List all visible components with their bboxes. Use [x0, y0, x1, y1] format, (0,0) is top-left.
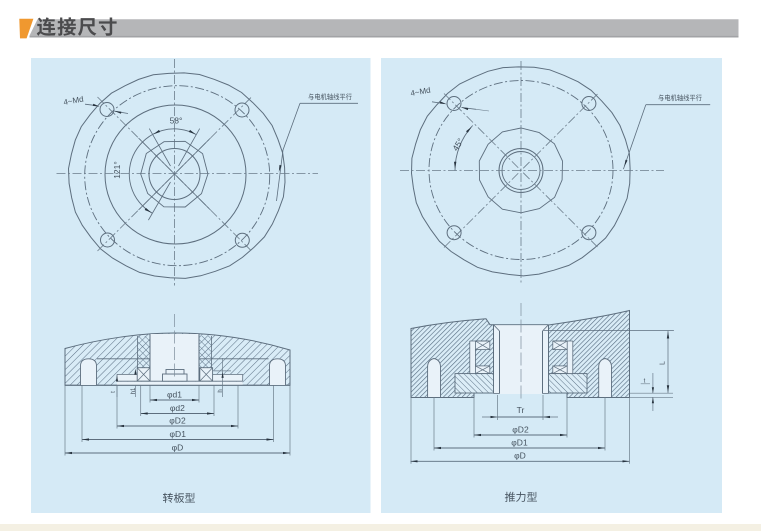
svg-text:h: h: [218, 389, 224, 392]
svg-text:L: L: [660, 361, 667, 365]
svg-text:φd1: φd1: [167, 389, 182, 399]
svg-text:Tr: Tr: [517, 405, 525, 415]
svg-text:φD2: φD2: [512, 424, 529, 434]
svg-text:φd2: φd2: [170, 403, 185, 413]
svg-text:φD: φD: [514, 451, 526, 461]
svg-text:h1: h1: [131, 387, 137, 394]
svg-text:121°: 121°: [112, 161, 122, 179]
svg-text:58°: 58°: [170, 116, 183, 126]
svg-text:φD2: φD2: [169, 415, 186, 425]
svg-text:φD: φD: [172, 442, 184, 452]
svg-text:φD1: φD1: [170, 429, 187, 439]
svg-text:φD1: φD1: [511, 437, 528, 447]
